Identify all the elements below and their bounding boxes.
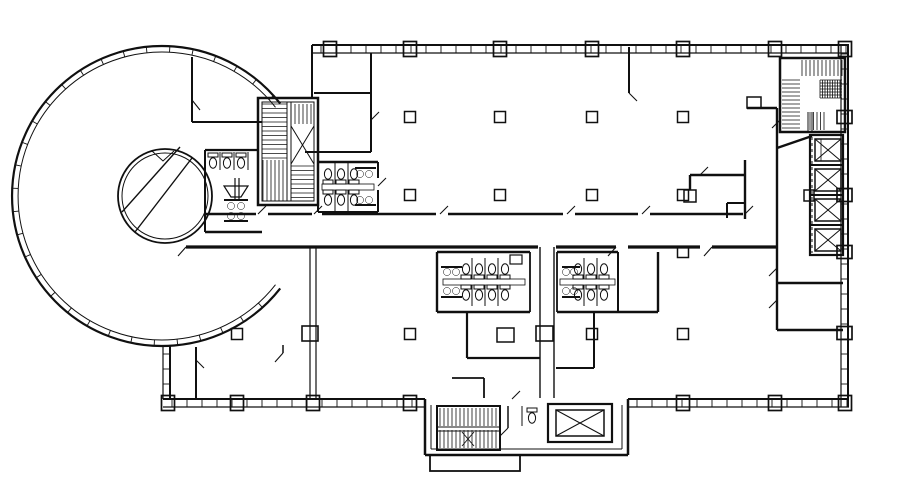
- circular-office-wing: [12, 46, 280, 346]
- restroom-core-center-left: [443, 264, 510, 300]
- restroom-core-center-right: [562, 264, 609, 300]
- floor-plan: [0, 0, 903, 487]
- restroom-south: [527, 408, 537, 423]
- northeast-stair: [780, 58, 845, 132]
- restroom-core-west: [208, 153, 248, 220]
- structural-column-grid: [232, 112, 689, 342]
- south-stair: [437, 406, 500, 450]
- floor-plan-drawing: [0, 0, 903, 487]
- restroom-fixtures: [208, 153, 609, 423]
- central-drum-core: [118, 147, 212, 243]
- passenger-elevator-bank: [804, 135, 843, 255]
- freight-elevator: [548, 404, 612, 442]
